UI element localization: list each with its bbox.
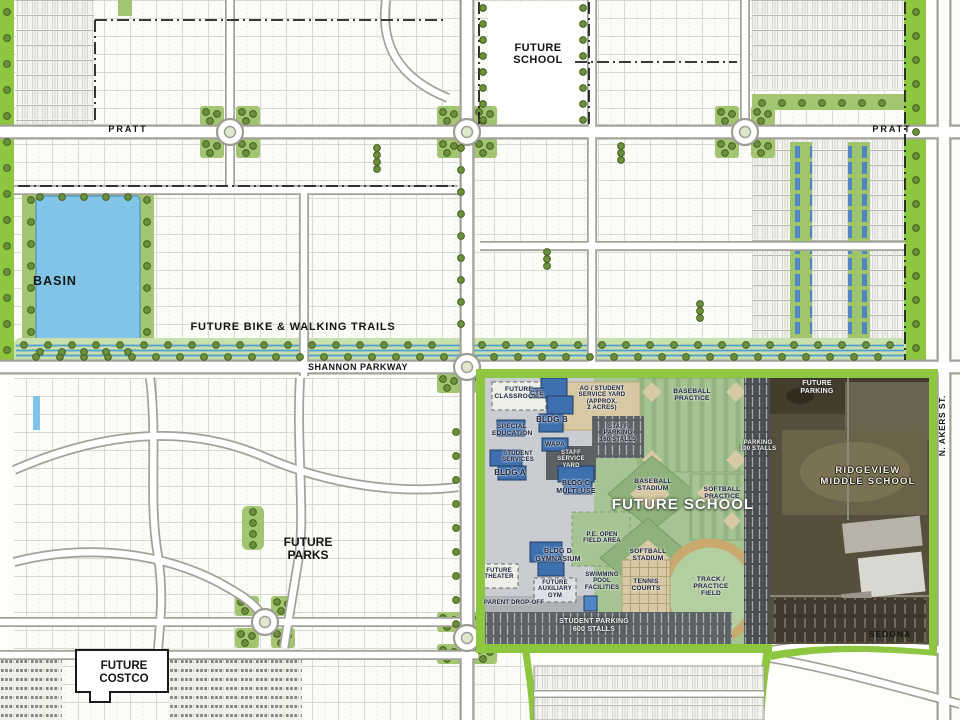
- basin-pond: [22, 188, 154, 364]
- master-plan-map: FUTURE SCHOOL PRATT PRATT BASIN FUTURE B…: [0, 0, 960, 720]
- aerial-photo: [770, 378, 930, 644]
- small-water-feature: [33, 396, 40, 430]
- bottom-neighborhood: [534, 666, 764, 720]
- map-canvas: [0, 0, 960, 720]
- school-site-plan: [480, 376, 770, 648]
